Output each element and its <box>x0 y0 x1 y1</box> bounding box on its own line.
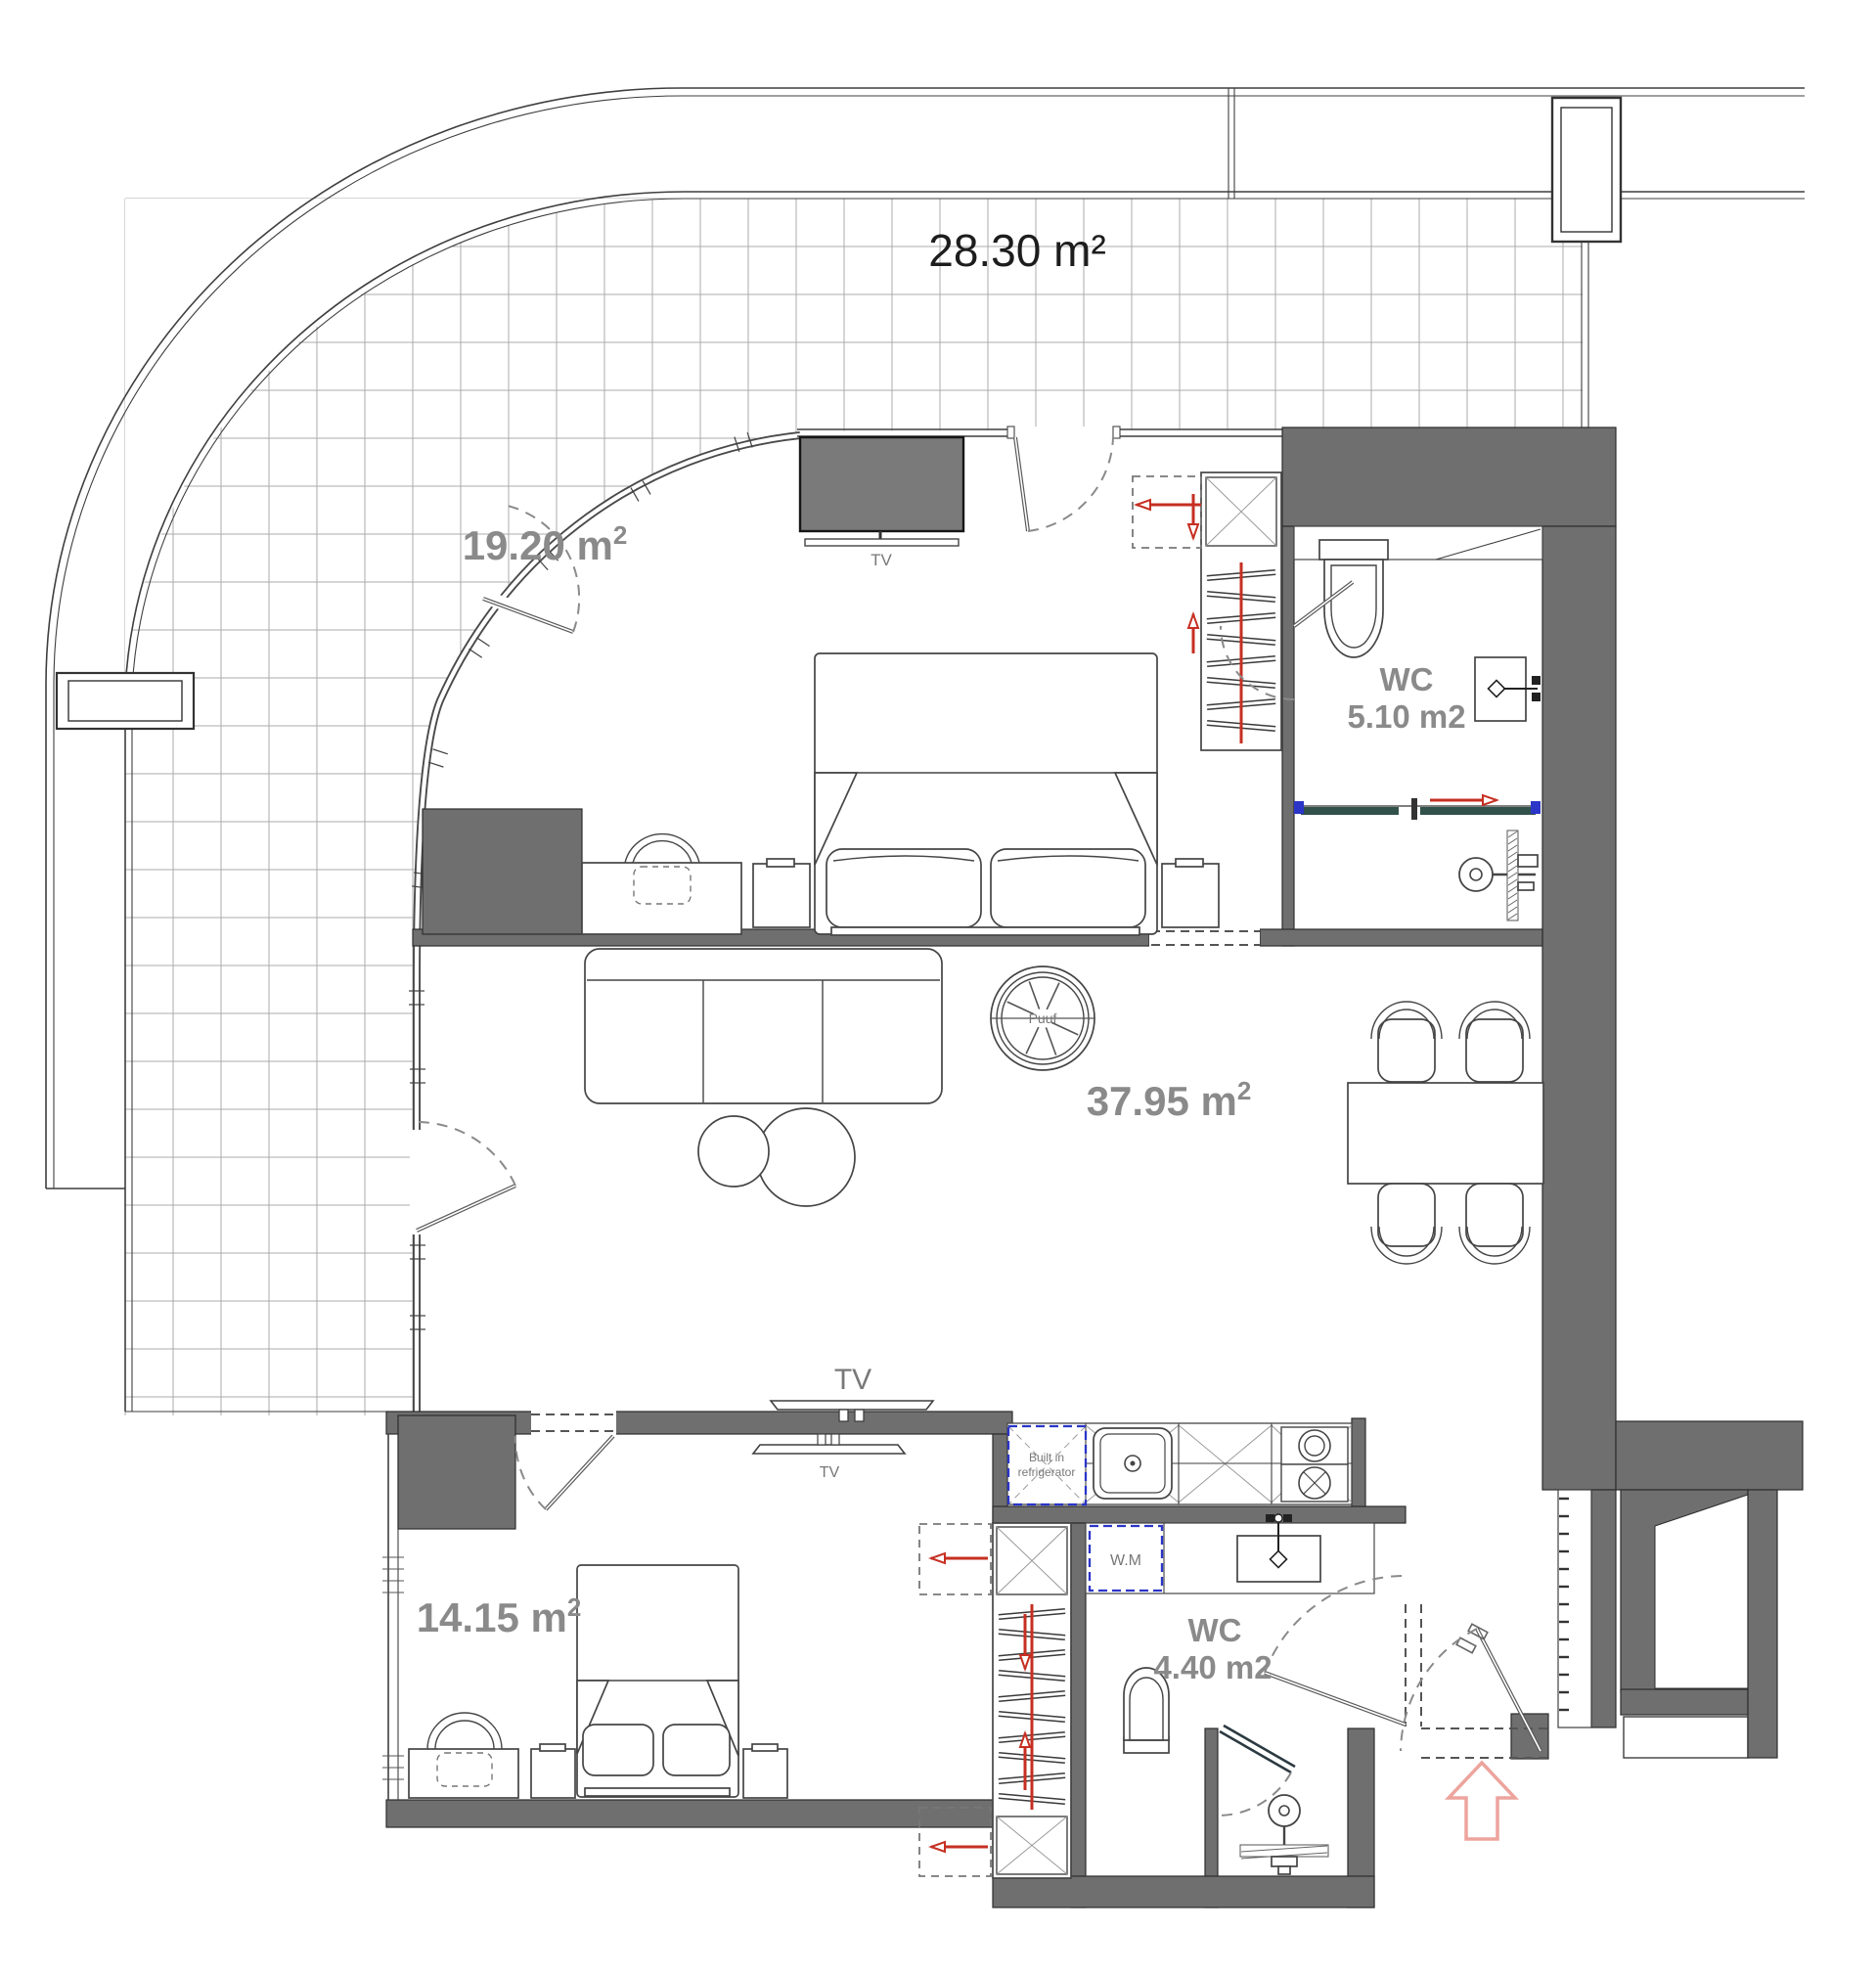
core-shaft-void <box>1655 1495 1748 1688</box>
headboard <box>585 1788 730 1796</box>
wall-beside-radiator <box>1591 1490 1616 1727</box>
wall-wc2-top <box>993 1506 1406 1523</box>
floor-plan-drawing: 28.30 m² <box>0 0 1876 1974</box>
core-wall-right <box>1748 1490 1777 1758</box>
door-bedroom-2 <box>515 1436 613 1509</box>
shower-head-2 <box>1269 1795 1300 1826</box>
dining-table <box>1348 1083 1543 1184</box>
wall-shower1-bottom <box>1260 929 1542 946</box>
nightstand <box>531 1744 575 1798</box>
refrigerator-label-1: Built in <box>1029 1451 1064 1464</box>
sliding-panel <box>1301 807 1399 815</box>
tv-label: TV <box>834 1364 871 1396</box>
pillow <box>663 1725 730 1775</box>
shower-2 <box>1218 1726 1328 1874</box>
column-left <box>57 673 194 729</box>
bedroom-2: 14.15 m2 <box>382 1415 787 1800</box>
dresser-bedroom-1 <box>423 809 582 934</box>
wall-wc1-left <box>1282 526 1294 946</box>
balcony-area-label: 28.30 m² <box>928 225 1106 276</box>
tv-label: TV <box>820 1464 840 1481</box>
bed-bedroom-2 <box>577 1565 738 1797</box>
wardrobe-bedroom-2 <box>398 1415 515 1529</box>
column-top-right <box>1552 98 1621 242</box>
refrigerator-label-2: refrigerator <box>1018 1465 1076 1479</box>
entry-arrow <box>1449 1763 1515 1839</box>
stove <box>1281 1427 1348 1502</box>
wall-entry-stub <box>1511 1714 1548 1759</box>
door-mask <box>1013 426 1115 439</box>
kitchen-sink <box>1094 1428 1172 1499</box>
window-ticks-bedroom2 <box>382 1557 404 1779</box>
bedroom-1-area-label: 19.20 m2 <box>463 520 628 568</box>
door-jamb <box>1113 426 1120 438</box>
nightstand <box>753 859 810 927</box>
core-slab-bottom <box>1621 1689 1748 1715</box>
wc2-area: 4.40 m2 <box>1153 1649 1272 1685</box>
tv-label: TV <box>871 551 892 569</box>
door-jamb <box>1007 426 1014 438</box>
nightstand <box>1162 859 1219 927</box>
pillow <box>826 849 981 927</box>
wc2-name: WC <box>1188 1612 1242 1648</box>
radiator <box>1558 1490 1591 1727</box>
core-duct <box>1624 1717 1748 1758</box>
door-mask <box>410 1130 424 1234</box>
rail-end <box>1531 801 1541 814</box>
wall-kitchen-right-stub <box>1352 1418 1365 1506</box>
headboard <box>831 927 1139 935</box>
wc1-name: WC <box>1380 661 1434 697</box>
wall-top-right-slab <box>1282 427 1616 526</box>
coffee-table-small <box>698 1116 769 1187</box>
kitchen: Built in refrigerator <box>1007 1423 1352 1504</box>
pouf-label: Puuf <box>1029 1010 1057 1026</box>
sliding-handle <box>1411 798 1417 820</box>
wall-wc2-left <box>1071 1523 1086 1907</box>
pouf: Puuf <box>991 966 1094 1070</box>
coffee-table-large <box>757 1108 855 1206</box>
rail-end <box>1294 801 1304 814</box>
desk-bedroom-2 <box>409 1749 518 1798</box>
wall-bottom-slab <box>993 1876 1374 1907</box>
pillow <box>583 1725 653 1775</box>
bed-bedroom-1 <box>815 653 1157 935</box>
wall-bedroom2-bottom <box>386 1800 995 1827</box>
desk-bedroom-1 <box>582 863 741 934</box>
door-wc2 <box>1265 1576 1406 1725</box>
living-area-label: 37.95 m2 <box>1087 1076 1252 1124</box>
wc1-area: 5.10 m2 <box>1347 698 1465 735</box>
sofa <box>585 949 942 1103</box>
floor-plan-page: 28.30 m² <box>0 0 1876 1974</box>
sliding-panel <box>1420 807 1536 815</box>
wm-label: W.M <box>1110 1552 1141 1569</box>
tv-bedroom-2: TV <box>753 1434 905 1481</box>
wall-right <box>1542 526 1616 1490</box>
pillow <box>991 849 1145 927</box>
bedroom-2-area-label: 14.15 m2 <box>417 1593 582 1640</box>
core-slab-top <box>1616 1421 1803 1490</box>
nightstand <box>743 1744 787 1798</box>
